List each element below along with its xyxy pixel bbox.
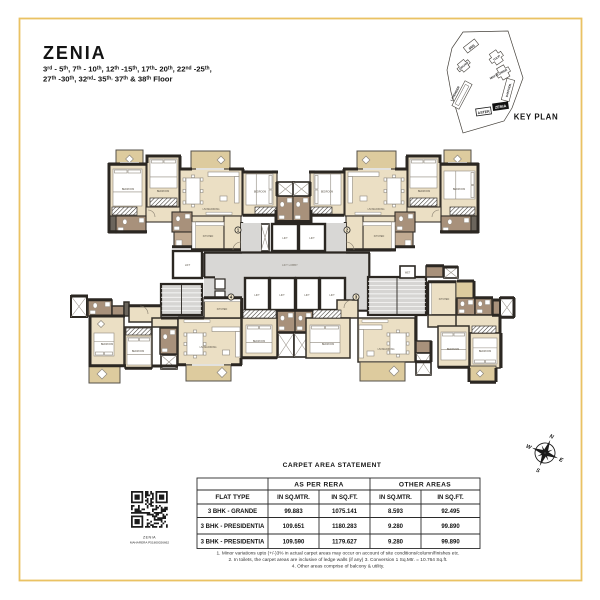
svg-text:92.495: 92.495: [441, 509, 460, 515]
svg-text:99.890: 99.890: [441, 524, 460, 530]
svg-text:3 BHK - PRESIDENTIA: 3 BHK - PRESIDENTIA: [201, 524, 265, 530]
svg-text:3 BHK - PRESIDENTIA: 3 BHK - PRESIDENTIA: [201, 539, 265, 545]
svg-text:ZENIA: ZENIA: [43, 43, 107, 63]
svg-text:BEDROOM: BEDROOM: [132, 350, 144, 353]
svg-text:BEDROOM: BEDROOM: [418, 190, 430, 193]
svg-text:KITCHEN: KITCHEN: [203, 235, 214, 238]
svg-text:8.593: 8.593: [388, 509, 404, 515]
svg-text:IN SQ.FT.: IN SQ.FT.: [331, 495, 358, 501]
svg-text:KITCHEN: KITCHEN: [374, 235, 385, 238]
svg-text:LIFT: LIFT: [254, 293, 260, 297]
svg-text:109.590: 109.590: [283, 539, 305, 545]
svg-text:BEDROOM: BEDROOM: [453, 188, 465, 191]
svg-text:9.280: 9.280: [388, 539, 404, 545]
svg-text:BEDROOM: BEDROOM: [101, 343, 113, 346]
svg-text:BEDROOM: BEDROOM: [254, 191, 266, 194]
svg-text:FLAT TYPE: FLAT TYPE: [215, 494, 250, 501]
svg-text:9.280: 9.280: [388, 524, 404, 530]
svg-text:BEDROOM: BEDROOM: [157, 190, 169, 193]
svg-text:KEY PLAN: KEY PLAN: [514, 113, 559, 122]
svg-text:LIFT LOBBY: LIFT LOBBY: [282, 263, 298, 267]
svg-text:MAHARERA P51800026662: MAHARERA P51800026662: [130, 541, 169, 545]
svg-text:LIVING/DINING: LIVING/DINING: [368, 208, 385, 211]
svg-text:99.890: 99.890: [441, 539, 460, 545]
svg-text:LIVING/DINING: LIVING/DINING: [378, 348, 395, 351]
svg-text:1. Minor variations upto (+/-): 1. Minor variations upto (+/-)3% in actu…: [216, 551, 459, 557]
svg-text:BEDROOM: BEDROOM: [253, 340, 265, 343]
svg-text:BEDROOM: BEDROOM: [122, 188, 134, 191]
svg-text:BEDROOM: BEDROOM: [322, 343, 334, 346]
svg-text:LIFT: LIFT: [185, 263, 191, 267]
svg-text:IN SQ.MTR.: IN SQ.MTR.: [379, 495, 412, 501]
svg-text:IN SQ.MTR.: IN SQ.MTR.: [277, 495, 310, 501]
svg-text:3 BHK - GRANDE: 3 BHK - GRANDE: [208, 509, 257, 515]
svg-text:LIFT: LIFT: [282, 236, 288, 240]
svg-text:AS PER RERA: AS PER RERA: [294, 482, 343, 489]
svg-text:1179.627: 1179.627: [332, 539, 357, 545]
svg-text:1075.141: 1075.141: [332, 509, 358, 515]
svg-text:CARPET AREA STATEMENT: CARPET AREA STATEMENT: [283, 462, 382, 469]
svg-text:LIVING/DINING: LIVING/DINING: [203, 208, 220, 211]
svg-text:WET: WET: [405, 272, 411, 275]
svg-text:BEDROOM: BEDROOM: [479, 350, 491, 353]
svg-text:2. In toilets, the carpet area: 2. In toilets, the carpet areas are incl…: [228, 557, 447, 563]
svg-text:LIVING/DINING: LIVING/DINING: [200, 346, 217, 349]
svg-text:LIFT: LIFT: [329, 293, 335, 297]
svg-text:BEDROOM: BEDROOM: [447, 348, 459, 351]
svg-text:OTHER AREAS: OTHER AREAS: [399, 482, 451, 489]
svg-text:99.883: 99.883: [284, 509, 303, 515]
svg-text:4. Other areas comprise of bal: 4. Other areas comprise of balcony & uti…: [292, 564, 384, 570]
svg-text:ZENIA: ZENIA: [143, 536, 156, 540]
svg-text:KITCHEN: KITCHEN: [439, 298, 450, 301]
svg-text:LIFT: LIFT: [279, 293, 285, 297]
svg-text:IN SQ.FT.: IN SQ.FT.: [437, 495, 464, 501]
svg-text:BEDROOM: BEDROOM: [321, 191, 333, 194]
svg-text:109.651: 109.651: [283, 524, 305, 530]
svg-text:LIFT: LIFT: [304, 293, 310, 297]
svg-text:KITCHEN: KITCHEN: [217, 308, 228, 311]
svg-text:1180.283: 1180.283: [332, 524, 357, 530]
svg-text:LIFT: LIFT: [309, 236, 315, 240]
